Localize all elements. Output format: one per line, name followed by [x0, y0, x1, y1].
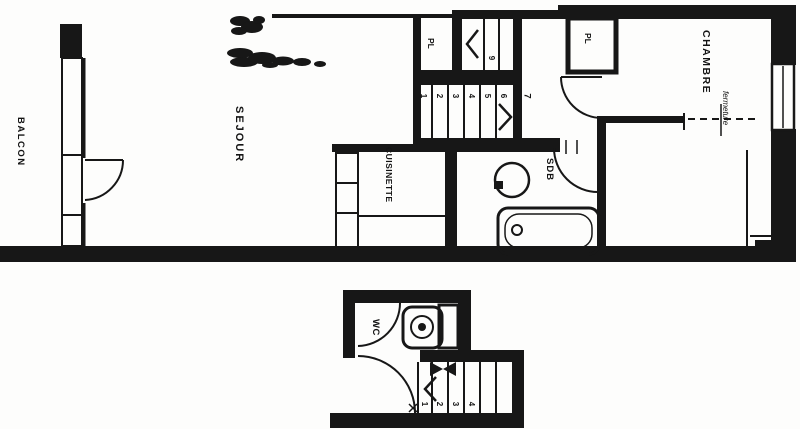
closet-label-pl-right: PL	[583, 33, 593, 44]
kitchen-top-wall	[332, 144, 414, 152]
right-wall-upper	[771, 5, 796, 65]
kitchen-unit-2	[336, 183, 358, 213]
bathtub-drain	[512, 225, 522, 235]
bathroom-door-swing	[554, 148, 598, 192]
closet-upper-right-box	[568, 18, 616, 72]
upper-stair-tread-number-4: 4	[467, 94, 475, 98]
bowtie-right-triangle	[443, 362, 456, 376]
room-label-balcon: BALCON	[15, 117, 26, 167]
bowtie-left-triangle	[430, 362, 443, 376]
balcony-glazing	[62, 58, 82, 246]
annotation-fermeture: fermeture	[721, 91, 730, 125]
stairwell-right-wall	[513, 15, 522, 152]
top-wall-mid	[452, 10, 560, 19]
ink-smudge-stamp	[230, 16, 265, 35]
lower-stair-tread-number-4: 4	[467, 402, 475, 406]
apartment-floor-plan: BALCON SEJOUR CUISINETTE SDB CHAMBRE fer…	[0, 0, 800, 429]
room-label-chambre: CHAMBRE	[700, 30, 712, 94]
kitchen-unit-3	[336, 213, 358, 247]
upper-stair-tread-number-1: 1	[419, 94, 427, 98]
upper-stair-tread-number-5: 5	[483, 94, 491, 98]
upper-stair-tread-number-2: 2	[435, 94, 443, 98]
balcony-end-wall	[60, 24, 82, 58]
bedroom-door-swing	[561, 77, 602, 118]
kitchen-unit-1	[336, 153, 358, 183]
balcony-door-swing	[85, 160, 123, 200]
doors	[85, 77, 602, 413]
bathroom-door-jamb-ticks	[566, 140, 577, 154]
lower-stair-right-wall	[512, 350, 524, 425]
lower-stair-tread-number-1: 1	[420, 402, 428, 406]
toilet-nook-wall	[458, 300, 471, 362]
hall-bottom-wall	[413, 138, 560, 152]
entry-door-swing	[358, 356, 415, 413]
washbasin	[495, 163, 529, 197]
wc-left-wall	[343, 290, 355, 358]
entry-bottom-wall	[330, 413, 524, 428]
ink-smudge-scrawl	[227, 48, 326, 68]
room-label-cuisinette: CUISINETTE	[384, 147, 394, 203]
bedroom-wardrobe-line	[747, 150, 772, 255]
floor-plan-drawing	[0, 0, 800, 429]
bottom-exterior-wall	[0, 246, 796, 262]
upper-stair-turn-number-9: 9	[487, 56, 495, 60]
room-label-sdb: SDB	[544, 158, 555, 181]
stair-bowtie-symbol	[430, 362, 456, 376]
upper-stair-tread-number-3: 3	[451, 94, 459, 98]
room-label-sejour: SEJOUR	[233, 106, 245, 163]
upper-turn-treads	[484, 15, 499, 70]
bathtub-inner	[505, 214, 592, 248]
stair-direction-arrow-mid	[499, 104, 511, 130]
stair-direction-arrow-lower	[425, 377, 436, 401]
ink-smudges	[227, 16, 326, 68]
lower-flight-treads	[418, 362, 496, 415]
stairwell-mid-wall	[413, 70, 522, 85]
wc-top-wall	[343, 290, 471, 303]
closet-stair-divider	[452, 15, 462, 73]
upper-stair-tread-number-6: 6	[499, 94, 507, 98]
upper-stair-landing-number-7: 7	[523, 93, 531, 98]
right-wall-lower	[771, 129, 796, 262]
closet-label-pl-left: PL	[426, 38, 436, 49]
balcony-glazing-ticks	[62, 155, 82, 215]
lower-stair-tread-number-3: 3	[451, 402, 459, 406]
stair-direction-arrow-upper	[467, 30, 478, 58]
toilet-drain-dot	[418, 323, 426, 331]
lower-stair-tread-number-2: 2	[435, 402, 443, 406]
washbasin-tap	[494, 181, 503, 189]
top-wall-thin	[272, 14, 455, 18]
fermeture-partition	[684, 104, 756, 136]
room-label-wc: WC	[370, 319, 381, 336]
bedroom-partition-wall	[602, 116, 684, 123]
